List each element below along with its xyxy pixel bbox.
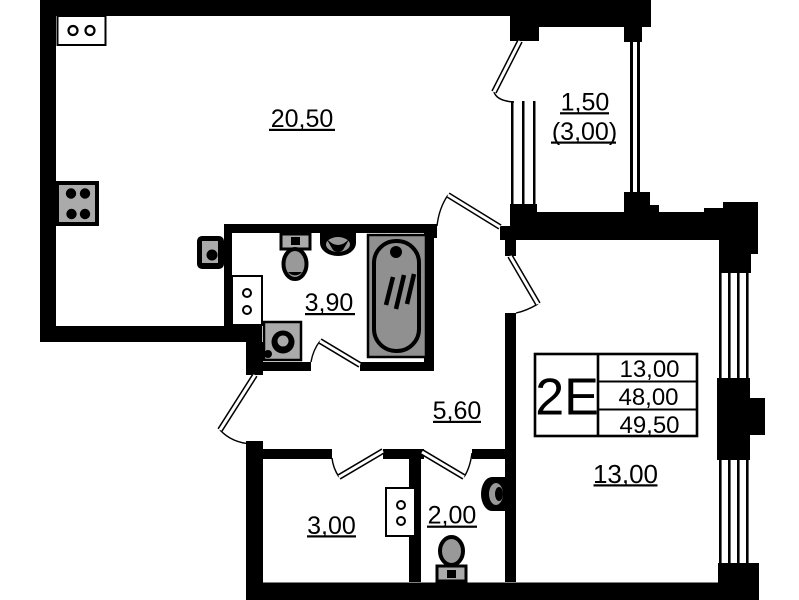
svg-text:13,00: 13,00: [619, 356, 679, 383]
svg-text:48,00: 48,00: [618, 384, 678, 411]
svg-text:3,90: 3,90: [305, 289, 354, 317]
svg-text:2Е: 2Е: [535, 369, 599, 427]
svg-text:49,50: 49,50: [619, 412, 679, 439]
svg-text:2,00: 2,00: [428, 502, 477, 530]
